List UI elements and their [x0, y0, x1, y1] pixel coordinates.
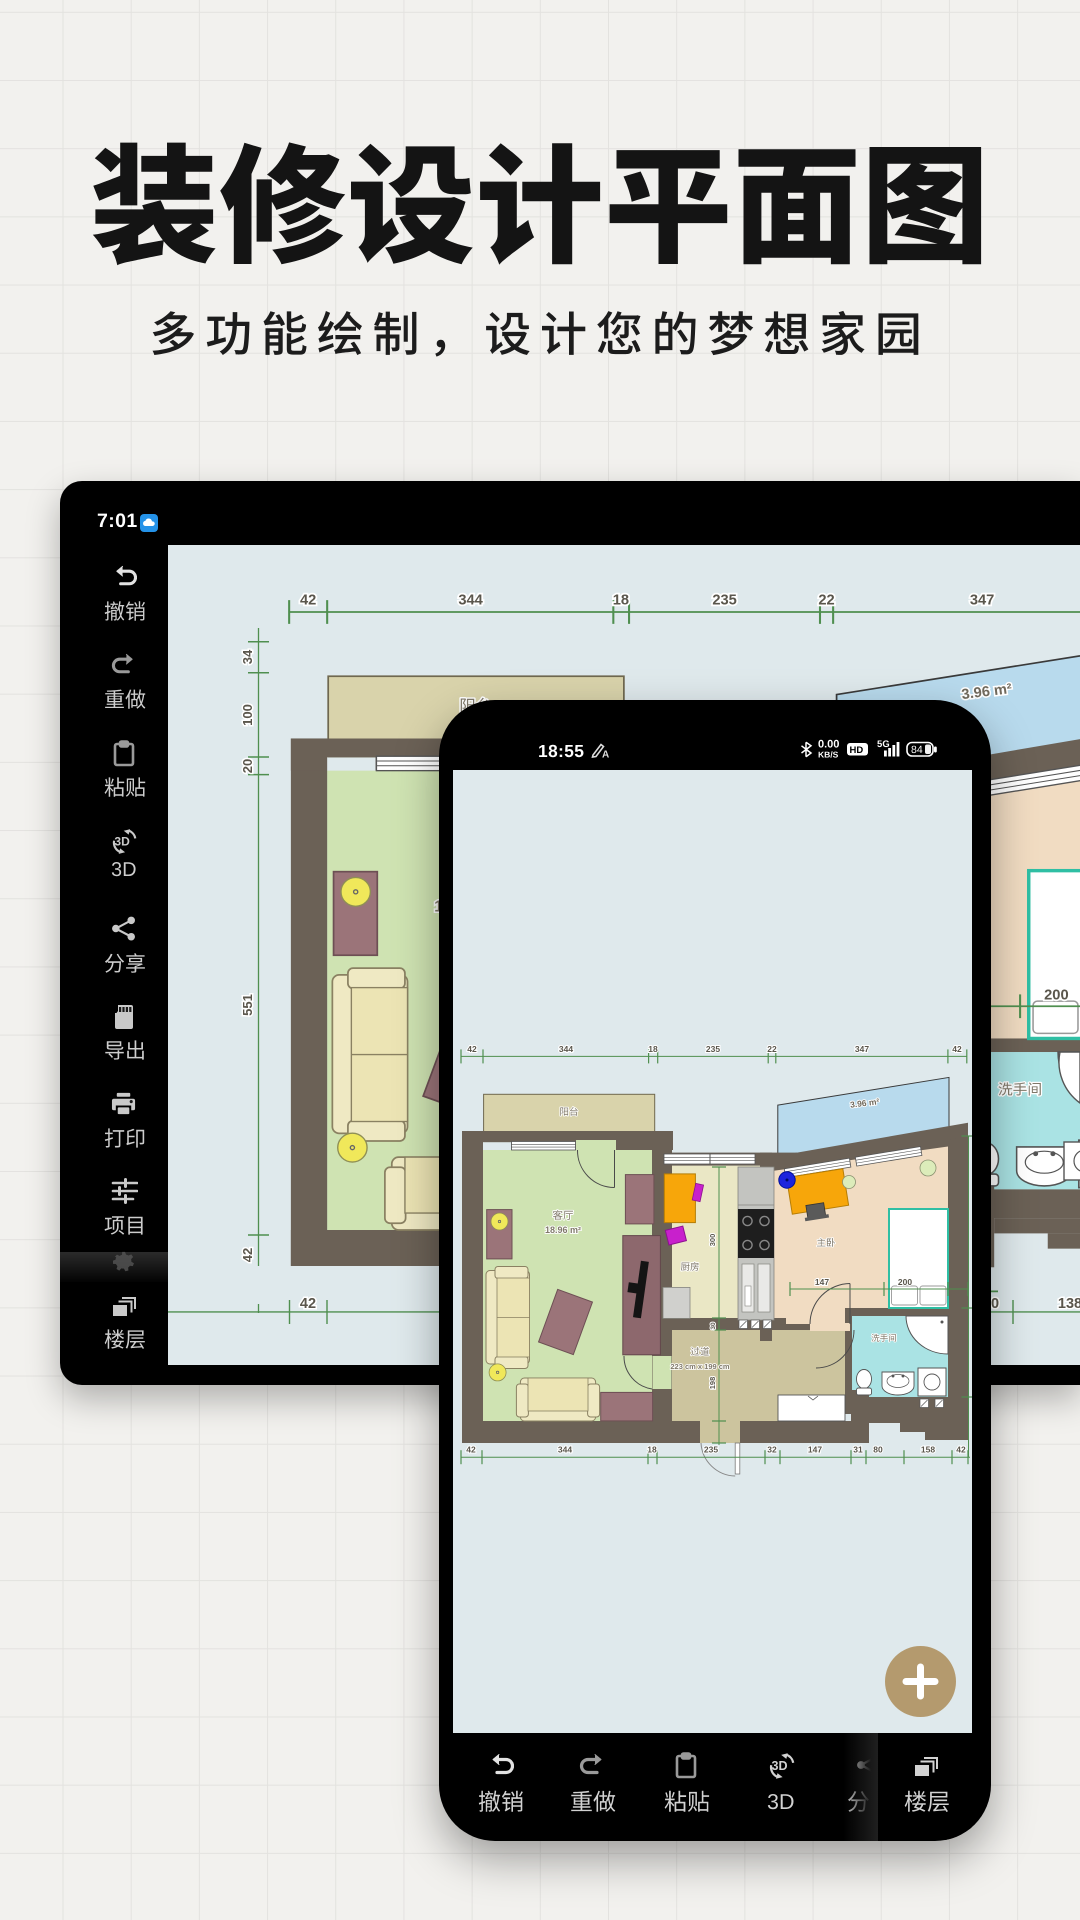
svg-text:A: A	[602, 750, 609, 760]
svg-text:3D: 3D	[114, 834, 130, 848]
svg-text:138: 138	[1058, 1296, 1080, 1312]
svg-text:42: 42	[300, 1296, 316, 1312]
svg-text:0: 0	[991, 1296, 999, 1312]
svg-text:3D: 3D	[772, 1759, 788, 1773]
